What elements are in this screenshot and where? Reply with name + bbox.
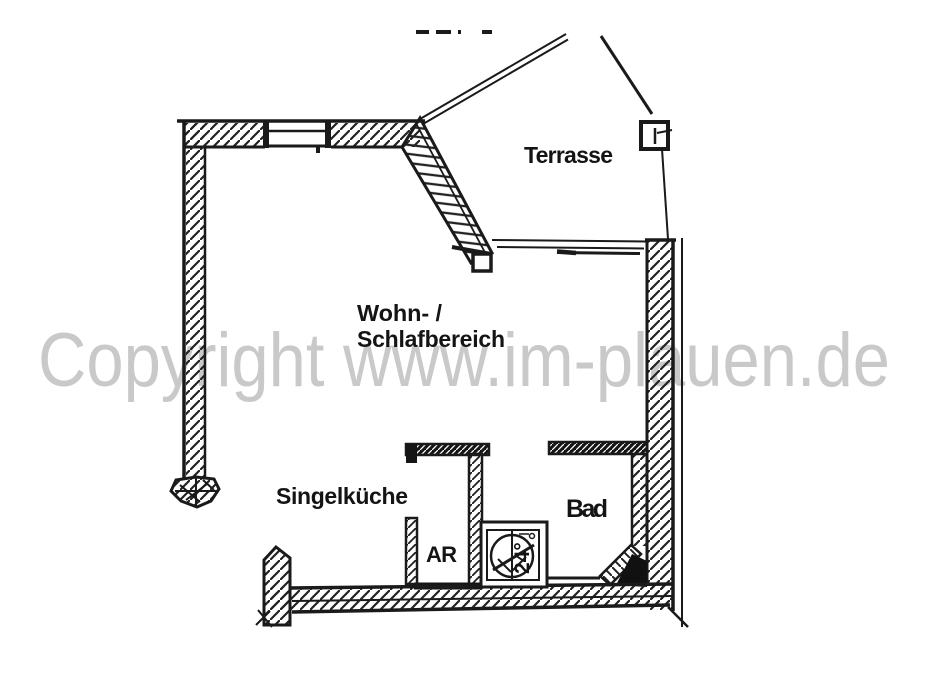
svg-text:24°: 24° bbox=[511, 542, 534, 574]
svg-text:Schlafbereich: Schlafbereich bbox=[357, 326, 505, 352]
svg-text:Singelküche: Singelküche bbox=[276, 483, 408, 509]
svg-text:Wohn- /: Wohn- / bbox=[357, 300, 442, 326]
svg-text:AR: AR bbox=[426, 542, 457, 567]
svg-text:Terrasse: Terrasse bbox=[524, 142, 613, 168]
svg-text:Bad: Bad bbox=[566, 495, 608, 523]
